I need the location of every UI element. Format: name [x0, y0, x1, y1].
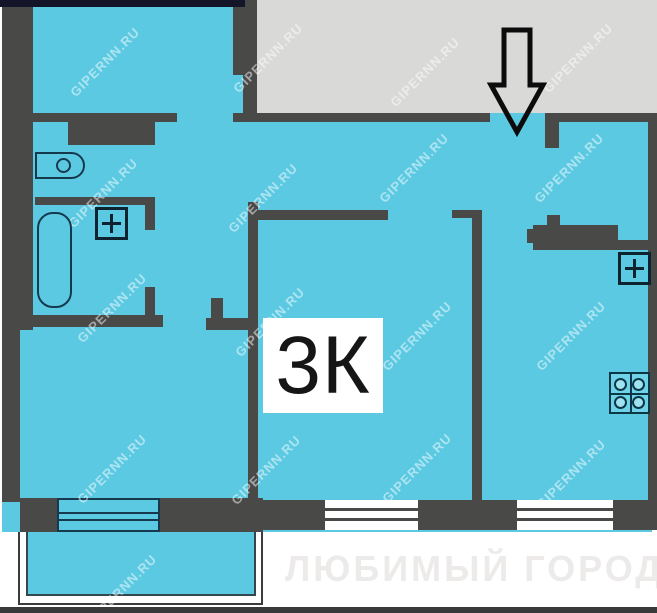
wall-bottom-2 [160, 498, 263, 532]
wall-bath-door-stub-bottom [145, 287, 155, 315]
plus-box-icon [95, 207, 128, 240]
outside-area [257, 0, 657, 113]
wall-bottom-1 [20, 498, 57, 532]
wall-hall-stub-horizontal [206, 318, 253, 330]
bottom-exterior-band [0, 607, 657, 613]
wall-right-exterior [648, 113, 657, 503]
wall-left-upper [2, 5, 33, 330]
wall-bath-door-stub-top [145, 197, 155, 230]
wardrobe [533, 225, 618, 250]
arrow-down-icon [480, 18, 555, 140]
window-pane-line [517, 518, 613, 521]
wall-hall-kitchen [618, 240, 657, 250]
bathtub-icon [37, 212, 72, 308]
plus-icon [633, 259, 636, 278]
window-left-room [57, 498, 160, 532]
wc-closet [68, 122, 155, 145]
wall-kitchen-left [472, 210, 482, 502]
window-pane-line [325, 508, 418, 511]
window-living-room [325, 500, 418, 530]
burner-icon [614, 378, 627, 391]
window-kitchen [517, 500, 613, 530]
wall-hall-stub-vertical [211, 298, 223, 318]
toilet-icon [56, 158, 71, 173]
stove-burners-icon [609, 372, 650, 414]
wall-topleft-room-bottom [33, 113, 177, 122]
window-pane-line [59, 512, 158, 514]
wall-bottom-3 [263, 500, 325, 530]
wall-left-lower [2, 330, 20, 502]
burner-icon [632, 378, 645, 391]
footer-watermark: ЛЮБИМЫЙ ГОРОД [285, 548, 655, 590]
plus-icon [110, 214, 113, 233]
wall-hall-top-left [233, 113, 490, 122]
window-pane-line [59, 519, 158, 521]
wall-wc-bath-divider [35, 197, 145, 205]
wall-bottom-6 [613, 500, 657, 530]
wall-living-left [248, 202, 258, 502]
wall-bottom-5 [483, 500, 517, 530]
floor-plan: GIPERNN.RUGIPERNN.RUGIPERNN.RUGIPERNN.RU… [0, 0, 657, 613]
wall-bottom-4 [418, 500, 483, 530]
window-pane-line [517, 508, 613, 511]
wall-topleft-room-right-upper [233, 0, 257, 75]
plus-box-icon [618, 252, 651, 285]
wall-hall-top-right [545, 113, 648, 122]
burner-icon [614, 396, 627, 409]
wall-living-top [256, 210, 388, 220]
room-label-box: 3К [263, 318, 383, 413]
wall-topleft-room-right-lower [243, 70, 257, 115]
burner-icon [632, 396, 645, 409]
wardrobe-stub-top [547, 215, 560, 225]
room-label: 3К [275, 325, 370, 407]
wall-bath-bottom [33, 315, 163, 327]
top-exterior-band [0, 0, 245, 7]
window-pane-line [325, 518, 418, 521]
wardrobe-stub-left [527, 229, 533, 243]
balcony [26, 532, 256, 596]
